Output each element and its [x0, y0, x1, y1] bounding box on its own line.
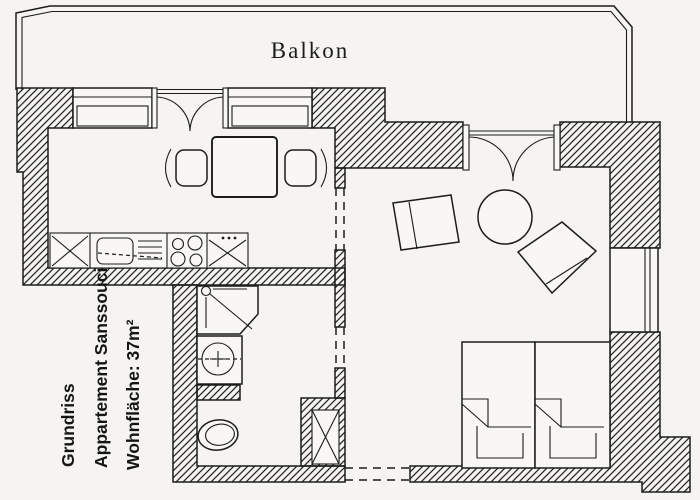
dining-openings: [73, 88, 312, 131]
beds-group: [462, 342, 610, 468]
living-window: [610, 248, 658, 332]
balcony-door-jamb-left: [152, 88, 157, 128]
window-dining-left-sill: [77, 106, 148, 126]
cabinet-dot-1: [222, 237, 225, 240]
bathroom-group: [196, 286, 258, 453]
toilet-icon: [196, 417, 240, 452]
cabinet-dot-2: [228, 237, 231, 240]
french-door-jamb-left: [463, 125, 469, 170]
window-dining-right-sill: [232, 106, 308, 126]
living-balcony-door: [463, 125, 560, 181]
dining-table: [212, 137, 277, 197]
french-door-leaf-left-arc: [469, 137, 513, 181]
balcony-label: Balkon: [271, 38, 349, 63]
dining-chair-right-back-arc: [321, 149, 327, 187]
dining-chair-left-back-arc: [166, 149, 172, 187]
toilet-outer: [196, 417, 240, 452]
window-living: [610, 248, 658, 332]
balcony-door-leaf-left-arc: [157, 97, 190, 131]
dining-set: [166, 137, 327, 197]
counter-outline: [50, 233, 248, 268]
french-door-jamb-right: [554, 125, 560, 170]
wall-bathroom-stub: [197, 385, 240, 400]
kitchen-counter: [50, 233, 248, 268]
wall-interior-stub-top: [335, 168, 345, 188]
dining-chair-right: [285, 150, 316, 186]
floor-plan-svg: Balkon: [0, 0, 700, 500]
lounge-chair: [518, 222, 596, 293]
wall-interior-low: [335, 368, 345, 398]
wall-dining-top-right: [312, 88, 463, 168]
wall-living-top-right: [560, 122, 660, 248]
floor-plan-page: Balkon: [0, 0, 700, 500]
balcony-door-leaf-right-arc: [190, 97, 223, 131]
balcony-door-jamb-right: [223, 88, 228, 128]
balcony-door-threshold: [152, 90, 228, 94]
wall-interior-mid: [335, 250, 345, 327]
plan-title-grundriss: Grundriss: [58, 383, 78, 467]
ventilation-shaft: [301, 398, 345, 466]
title-block: Grundriss Appartement Sanssouci Wohnfläc…: [58, 268, 143, 470]
french-door-leaf-right-arc: [513, 137, 554, 181]
living-furniture: [393, 190, 596, 293]
french-door-threshold: [463, 131, 560, 135]
armchair: [393, 195, 459, 250]
dining-chair-left: [176, 150, 207, 186]
passage-opening: [336, 188, 344, 250]
entrance-opening: [345, 468, 410, 480]
cabinet-dot-3: [234, 237, 237, 240]
bed-right: [535, 342, 610, 468]
plan-title-apartment: Appartement Sanssouci: [91, 268, 111, 468]
bathroom-door-opening: [336, 327, 344, 368]
round-table: [478, 190, 532, 244]
bed-left: [462, 342, 535, 468]
plan-title-area: Wohnfläche: 37m²: [123, 319, 143, 470]
